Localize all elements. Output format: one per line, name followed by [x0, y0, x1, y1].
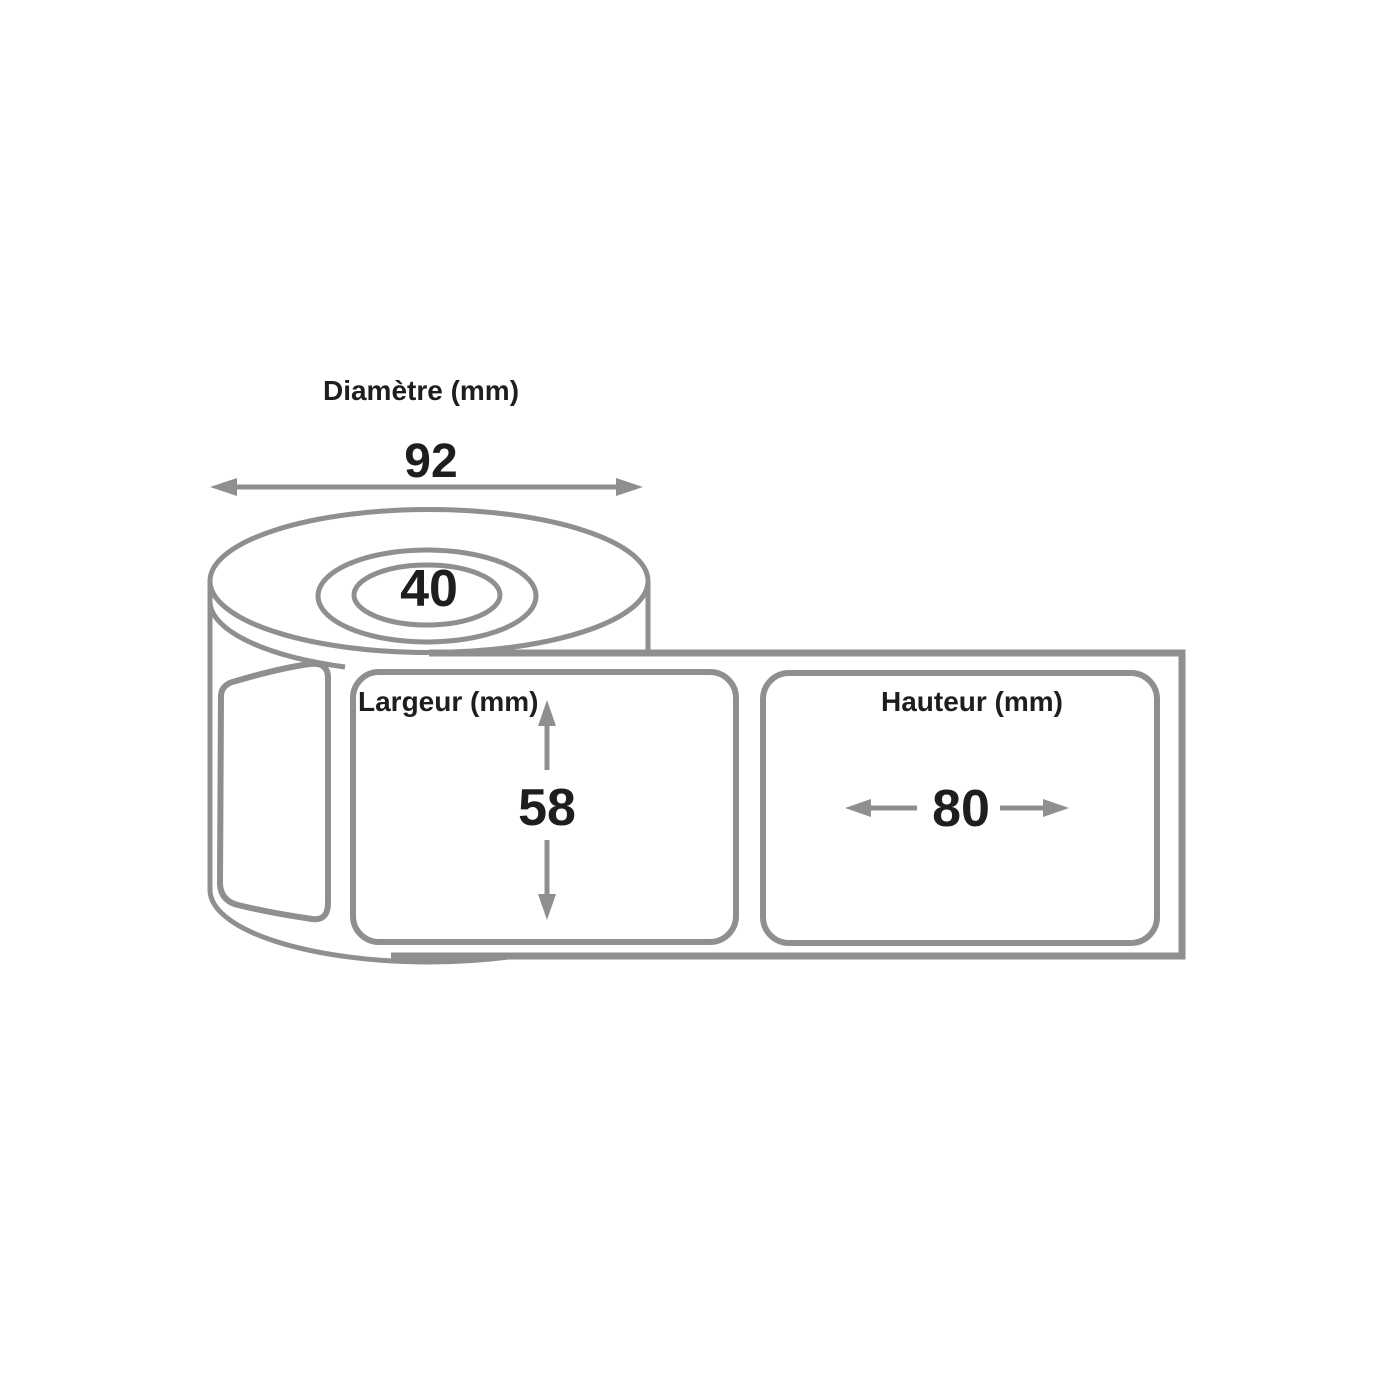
wrapped-label — [220, 664, 328, 919]
width-value: 58 — [518, 779, 576, 837]
label-roll-diagram-page: 40 Diamètre (mm) 92 Largeur (mm) 58 — [0, 0, 1400, 1400]
diameter-label: Diamètre (mm) — [323, 375, 519, 406]
label-roll-diagram: 40 Diamètre (mm) 92 Largeur (mm) 58 — [0, 0, 1400, 1400]
core-diameter-value: 40 — [400, 560, 458, 618]
diameter-value: 92 — [404, 435, 457, 488]
width-label: Largeur (mm) — [358, 686, 538, 717]
height-label: Hauteur (mm) — [881, 686, 1063, 717]
height-value: 80 — [932, 780, 990, 838]
